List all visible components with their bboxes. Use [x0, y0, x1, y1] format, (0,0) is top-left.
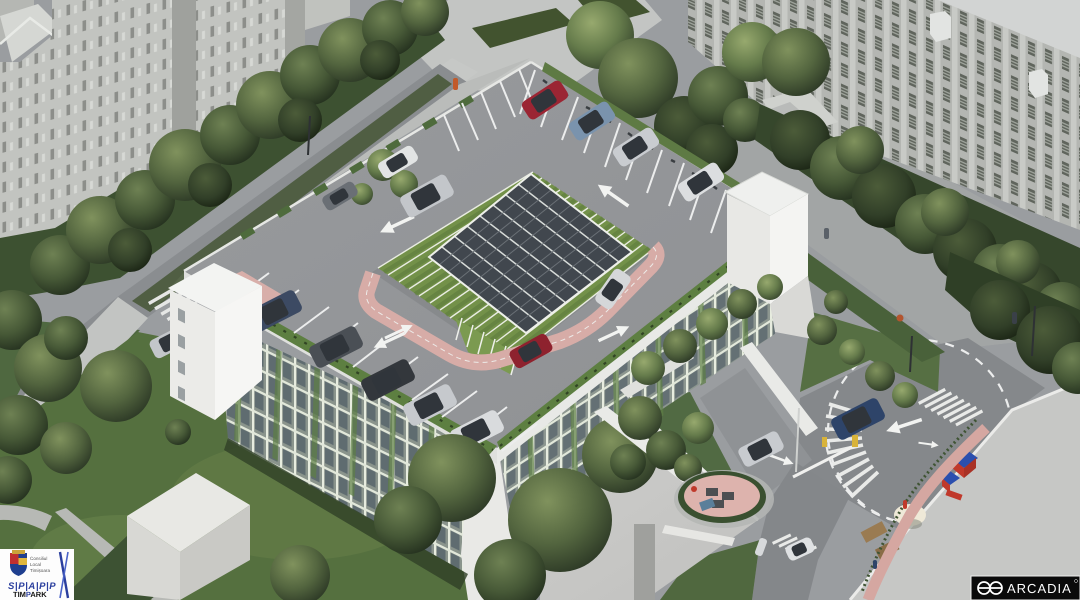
- svg-text:Timișoara: Timișoara: [30, 568, 50, 573]
- svg-text:Local: Local: [30, 562, 41, 567]
- svg-text:ARCADIA: ARCADIA: [1007, 581, 1072, 596]
- svg-text:Consiliul: Consiliul: [30, 556, 47, 561]
- svg-text:TIMPARK: TIMPARK: [13, 590, 47, 599]
